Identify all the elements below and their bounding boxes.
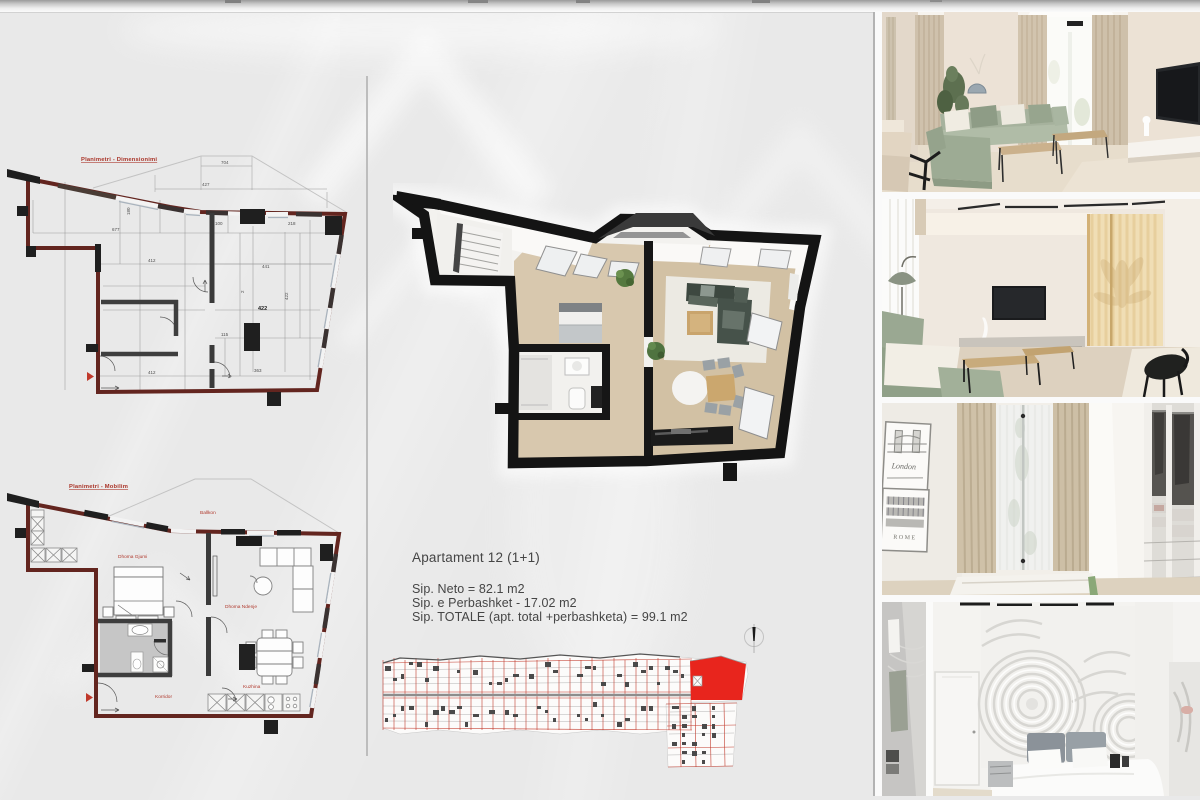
svg-text:422: 422 — [284, 292, 289, 300]
svg-text:Dhoma Ndenje: Dhoma Ndenje — [225, 604, 257, 610]
svg-text:Planimetri - Dimensionimi: Planimetri - Dimensionimi — [81, 157, 157, 163]
svg-text:Kuzhina: Kuzhina — [243, 684, 261, 690]
svg-text:Korridor: Korridor — [155, 694, 172, 700]
svg-text:115: 115 — [221, 332, 229, 337]
svg-text:427: 427 — [202, 182, 210, 187]
svg-text:363: 363 — [254, 368, 262, 373]
svg-text:Dhoma Gjumi: Dhoma Gjumi — [118, 554, 147, 560]
svg-text:218: 218 — [288, 221, 296, 226]
svg-text:Planimetri - Mobilim: Planimetri - Mobilim — [69, 484, 128, 490]
svg-text:100: 100 — [215, 221, 223, 226]
svg-text:London: London — [890, 461, 916, 471]
svg-text:412: 412 — [148, 258, 156, 263]
svg-text:412: 412 — [148, 370, 156, 375]
svg-text:Ballkon: Ballkon — [200, 510, 216, 516]
svg-text:441: 441 — [262, 264, 270, 269]
svg-text:422: 422 — [258, 306, 267, 312]
svg-text:240: 240 — [240, 290, 245, 430]
svg-text:704: 704 — [221, 160, 229, 165]
svg-text:677: 677 — [112, 227, 120, 232]
svg-text:ROME: ROME — [893, 535, 917, 542]
svg-text:180: 180 — [126, 207, 131, 215]
